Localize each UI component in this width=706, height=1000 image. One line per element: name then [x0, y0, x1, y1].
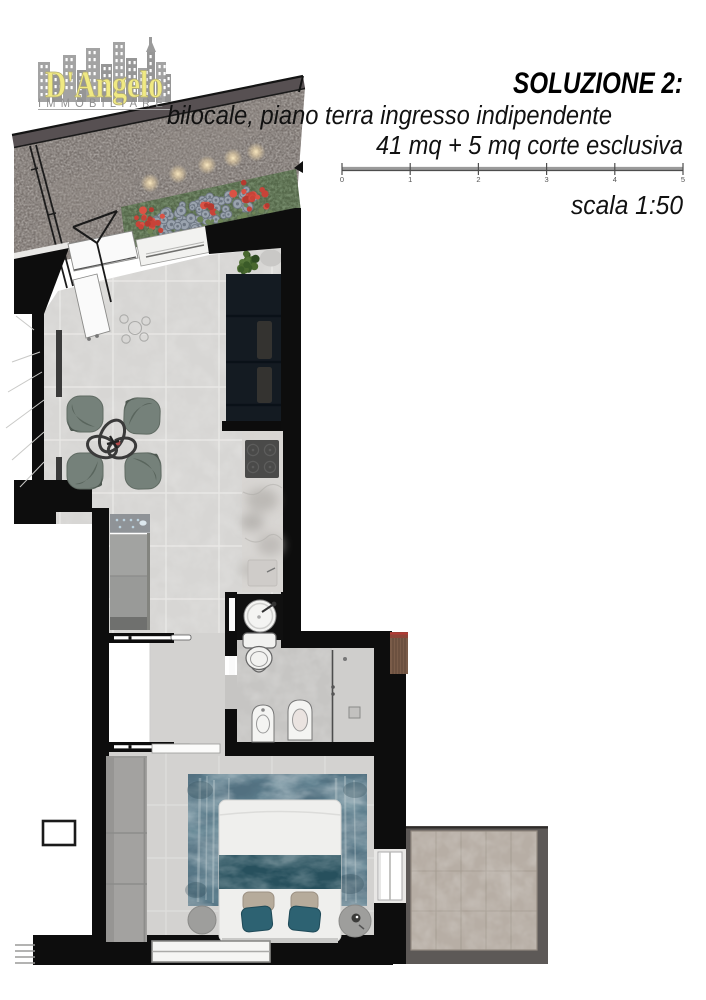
- svg-text:5: 5: [681, 175, 685, 184]
- svg-text:2: 2: [476, 175, 480, 184]
- svg-text:3: 3: [545, 175, 549, 184]
- svg-text:4: 4: [613, 175, 617, 184]
- svg-text:0: 0: [340, 175, 344, 184]
- svg-text:1: 1: [408, 175, 412, 184]
- svg-text:41 mq + 5 mq corte esclusiva: 41 mq + 5 mq corte esclusiva: [376, 132, 683, 160]
- svg-text:IMMOBILIARE: IMMOBILIARE: [38, 98, 168, 110]
- svg-text:scala 1:50: scala 1:50: [571, 192, 683, 220]
- svg-text:bilocale, piano terra ingresso: bilocale, piano terra ingresso indipende…: [167, 102, 612, 130]
- svg-text:SOLUZIONE 2:: SOLUZIONE 2:: [513, 67, 683, 100]
